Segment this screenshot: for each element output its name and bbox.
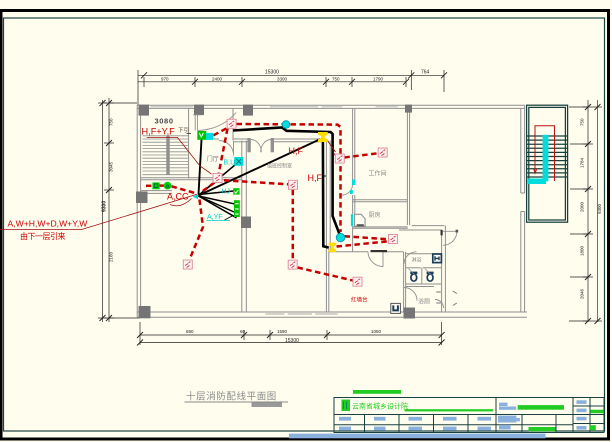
svg-text:2400: 2400 [212,77,223,82]
svg-text:H,F: H,F [308,173,323,183]
svg-text:H,F+Y,F: H,F+Y,F [142,127,176,137]
svg-text:HJ: HJ [222,189,231,196]
svg-text:红墙台: 红墙台 [351,296,368,304]
svg-text:3080: 3080 [155,117,174,126]
svg-text:1784: 1784 [580,157,585,168]
svg-text:2160: 2160 [109,251,114,262]
svg-text:H,F: H,F [289,146,304,156]
svg-text:970: 970 [161,77,169,82]
svg-text:9300: 9300 [597,203,602,214]
svg-text:淋浴: 淋浴 [412,257,422,264]
svg-text:B,U: B,U [224,160,236,167]
svg-text:764: 764 [421,70,430,76]
svg-text:值班控制室: 值班控制室 [267,163,292,170]
svg-text:60: 60 [240,329,246,334]
svg-text:A,CC: A,CC [167,192,189,202]
svg-text:1590: 1590 [277,329,288,334]
svg-text:690: 690 [186,329,194,334]
svg-text:由下一层引来: 由下一层引来 [20,231,65,241]
svg-text:厨房: 厨房 [369,211,381,219]
svg-text:云南省城乡设计院: 云南省城乡设计院 [352,402,408,411]
svg-text:3300: 3300 [277,77,288,82]
svg-text:15300: 15300 [285,338,299,344]
svg-text:1050: 1050 [371,329,382,334]
svg-text:3045: 3045 [109,161,114,172]
svg-text:工作间: 工作间 [369,170,387,178]
svg-text:下引: 下引 [178,126,189,134]
svg-text:A,W+H,W+D,W+Y,W: A,W+H,W+D,W+Y,W [8,219,89,229]
svg-text:2046: 2046 [580,288,585,299]
svg-text:1800: 1800 [580,245,585,256]
svg-text:1790: 1790 [373,77,384,82]
svg-text:门厅: 门厅 [207,155,219,163]
svg-text:A,YF: A,YF [207,214,223,221]
svg-text:750: 750 [109,118,114,126]
svg-text:15300: 15300 [265,70,279,76]
svg-text:9300: 9300 [102,201,108,212]
svg-text:十层消防配线平面图: 十层消防配线平面图 [186,391,277,403]
svg-text:750: 750 [580,118,585,126]
svg-text:2000: 2000 [580,201,585,212]
svg-text:750: 750 [332,77,340,82]
svg-text:浴厕: 浴厕 [418,298,430,306]
